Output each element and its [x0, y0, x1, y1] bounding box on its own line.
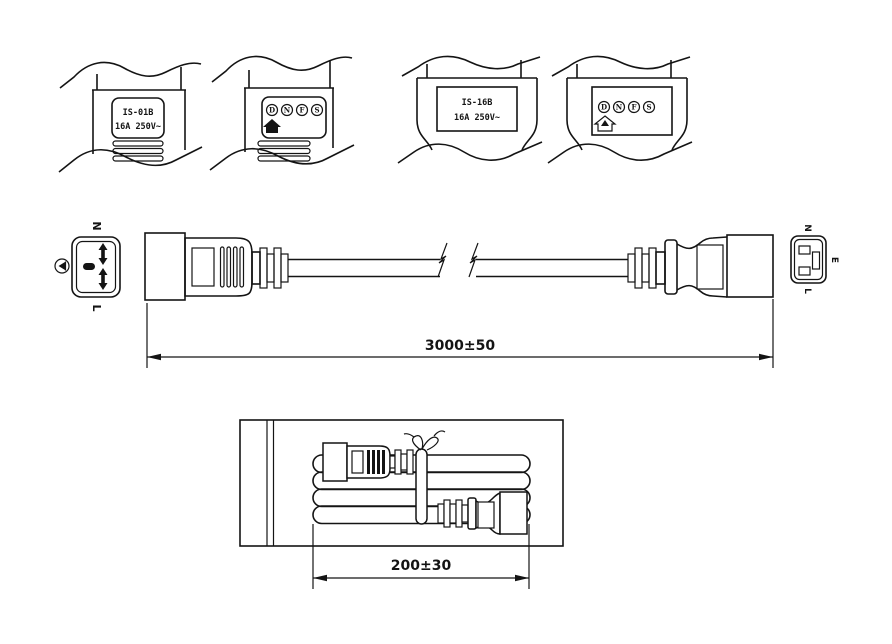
plug-strain-relief — [260, 248, 288, 288]
line-label: L — [90, 304, 103, 311]
arrowhead-right — [515, 575, 529, 581]
cable-right-segment — [476, 260, 628, 277]
cert-letter: S — [314, 106, 319, 115]
connector-neck — [656, 252, 665, 284]
cable-assembly-side-view — [145, 233, 773, 300]
plug-neck-outline — [92, 67, 186, 90]
arrowhead-right — [759, 354, 773, 360]
packed-c20-plug — [323, 443, 413, 481]
break-wave-bottom — [59, 147, 202, 172]
connector-front-block — [500, 492, 527, 534]
cert-marks-row: D N F S — [599, 102, 655, 113]
plug-neck — [390, 456, 395, 468]
arrowhead-left — [147, 354, 161, 360]
break-wave-top — [60, 62, 201, 88]
cable-break-icon — [438, 243, 478, 277]
dimension-cable-length: 3000±50 — [147, 299, 773, 368]
connector-neck-outline — [567, 60, 687, 78]
tie-band — [416, 449, 427, 524]
tie-bow — [404, 431, 445, 450]
drawing-sheet: IS-01B 16A 250V~ D N F S — [0, 0, 892, 644]
connector-flange — [468, 498, 476, 529]
coil-width-text: 200±30 — [391, 558, 452, 574]
packaging-view — [240, 420, 563, 546]
model-text: IS-01B — [123, 108, 154, 118]
connector-strain-relief — [438, 500, 462, 527]
packed-c19-connector — [438, 492, 527, 534]
line-label: L — [802, 288, 812, 294]
cert-letter: S — [646, 103, 651, 112]
cert-letter: N — [284, 106, 291, 115]
marking-plate — [112, 98, 164, 138]
connector-body-outline — [567, 78, 687, 150]
detail-view-c20-label: IS-01B 16A 250V~ — [59, 62, 202, 172]
neutral-contact-slot — [799, 246, 810, 254]
face-inner-outline — [77, 242, 116, 293]
box-flap-lines — [267, 420, 274, 546]
cert-letter: D — [601, 103, 607, 112]
neutral-pin-slot — [99, 243, 108, 265]
plug-strain-relief — [395, 450, 413, 474]
plug-neck — [252, 252, 260, 284]
earth-pin-slot — [83, 263, 95, 270]
line-pin-slot — [99, 268, 108, 290]
face-outer-outline — [72, 237, 120, 297]
rating-text: 16A 250V~ — [454, 113, 500, 123]
break-wave-top — [402, 56, 540, 76]
plug-front-block — [145, 233, 185, 300]
connector-waist — [677, 237, 727, 297]
face-outer-outline — [791, 236, 826, 283]
neutral-label: N — [90, 221, 103, 230]
detail-view-c20-certs: D N F S — [210, 56, 354, 170]
detail-view-c19-certs: D N F S — [548, 56, 692, 163]
connector-flange — [665, 240, 677, 294]
cable-length-text: 3000±50 — [425, 338, 495, 354]
c20-plug-face-view: N L — [55, 221, 120, 311]
house-mark-icon — [263, 119, 281, 133]
model-text: IS-16B — [462, 98, 493, 108]
earth-label: E — [829, 257, 839, 263]
connector-front-block — [727, 235, 773, 297]
cert-letter: F — [300, 106, 305, 115]
c20-plug-side — [145, 233, 288, 300]
plug-label-window — [192, 248, 214, 286]
c19-connector-face-view: N E L — [791, 224, 839, 294]
plug-front-block — [323, 443, 347, 481]
cert-letter: D — [269, 106, 275, 115]
break-wave-bottom — [548, 142, 692, 163]
earth-contact-slot — [813, 252, 820, 269]
cert-marks-row: D N F S — [267, 105, 323, 116]
grip-ribs — [113, 141, 163, 161]
connector-neck-outline — [417, 60, 537, 78]
arrowhead-left — [313, 575, 327, 581]
connector-label-window — [697, 245, 723, 289]
earth-symbol-icon — [55, 259, 69, 273]
c19-connector-side — [628, 235, 773, 297]
plug-grip-ribs — [221, 247, 244, 287]
cable-left-segment — [288, 260, 440, 277]
neutral-label: N — [802, 224, 812, 232]
rating-text: 16A 250V~ — [115, 122, 161, 132]
diagram-canvas: IS-01B 16A 250V~ D N F S — [0, 0, 892, 644]
connector-strain-relief — [628, 248, 656, 288]
house-crown-mark-icon — [595, 116, 615, 131]
connector-label-window — [478, 502, 494, 528]
extension-lines — [147, 299, 773, 368]
break-wave-top — [552, 56, 690, 76]
break-wave-bottom — [398, 142, 542, 163]
marking-plate — [437, 87, 517, 131]
detail-view-c19-label: IS-16B 16A 250V~ — [398, 56, 542, 163]
cert-letter: N — [616, 103, 623, 112]
cert-letter: F — [632, 103, 637, 112]
break-wave-top — [212, 56, 352, 82]
plug-label-window — [352, 451, 363, 473]
line-contact-slot — [799, 267, 810, 275]
connector-neck — [462, 505, 468, 522]
